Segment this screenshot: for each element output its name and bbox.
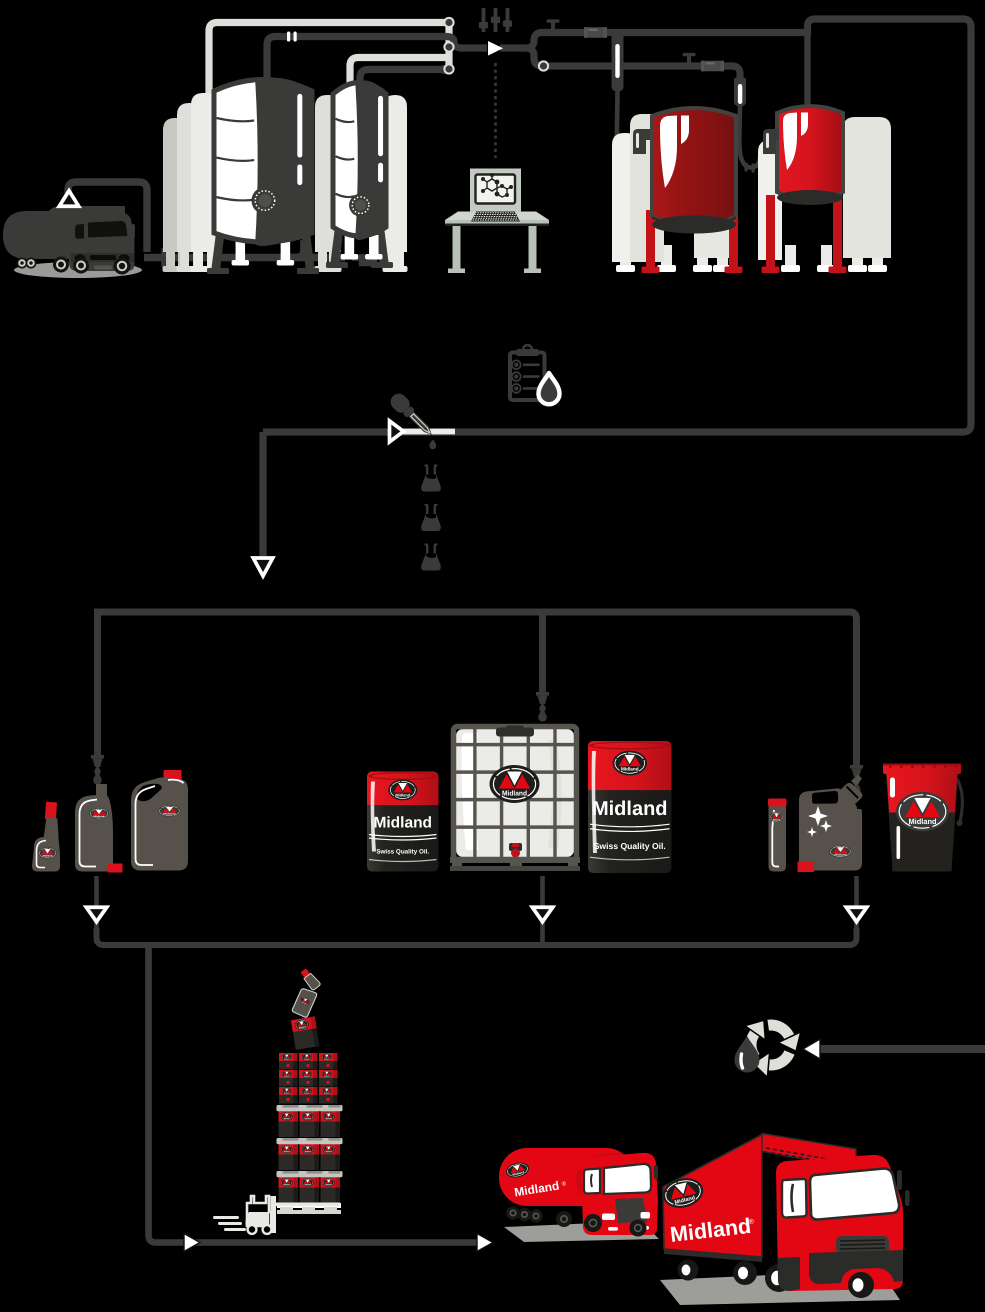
svg-text:Swiss Quality Oil.: Swiss Quality Oil. xyxy=(594,841,666,851)
svg-text:Midland: Midland xyxy=(373,815,432,832)
svg-text:Midland: Midland xyxy=(592,798,668,820)
svg-text:Swiss Quality Oil.: Swiss Quality Oil. xyxy=(376,849,429,856)
